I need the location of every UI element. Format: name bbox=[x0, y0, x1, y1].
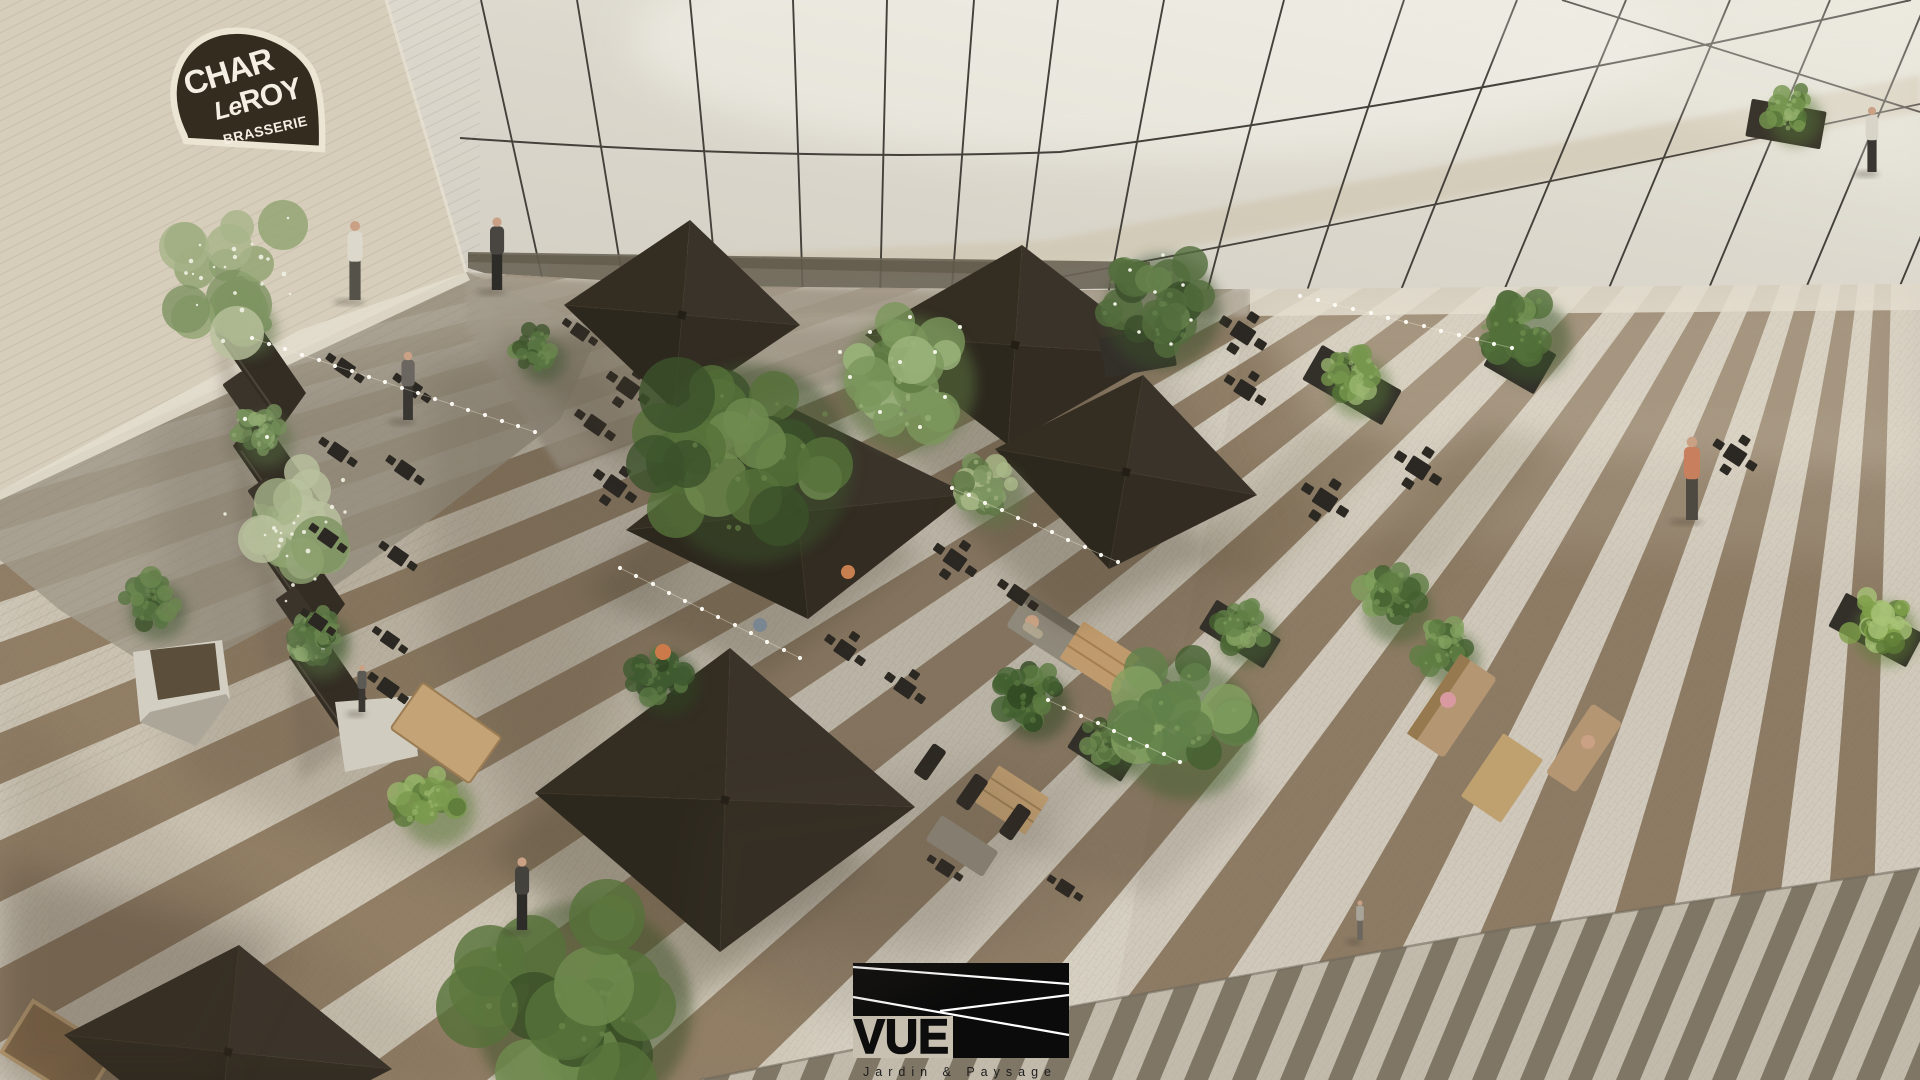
svg-text:VUE: VUE bbox=[854, 1011, 949, 1064]
svg-text:Jardin & Paysage: Jardin & Paysage bbox=[863, 1065, 1057, 1079]
